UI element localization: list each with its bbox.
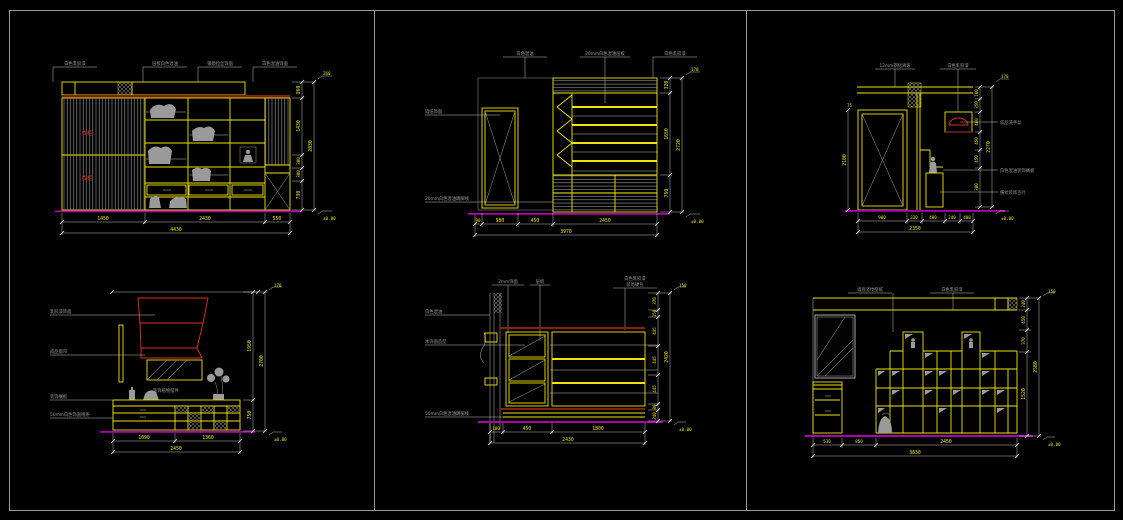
dim: 1520	[1021, 388, 1027, 400]
dim-total: 2270	[986, 141, 992, 153]
dim: 90	[475, 218, 481, 223]
datum: 170	[691, 67, 699, 72]
dim-total: 2580	[1033, 361, 1039, 373]
datum: ±0.00	[274, 437, 287, 442]
dim: 850	[855, 439, 863, 444]
d4-left-annotations: 乳胶漆饰面 成品窗帘 装饰搁板 50mm白色饰面线条 装饰植物摆件	[50, 308, 179, 418]
d1-top-annotations: 白色乳胶漆 层板白色混油 银镜拉丝饰面 白色混油饰面	[53, 60, 297, 82]
d5-top-annotations: 2mm饰面 层板 白色乳胶漆 装饰硬包	[492, 275, 657, 341]
d1-geometry: 衣柜 衣柜	[55, 82, 302, 212]
elevation-display-cabinet: 2mm饰面 层板 白色乳胶漆 装饰硬包 白色混油	[420, 275, 720, 480]
annotation-label: 银镜拉丝饰面	[207, 60, 233, 67]
dim-total: 2350	[909, 226, 921, 232]
dim: 750	[664, 189, 670, 198]
annotation-label: 白色混油	[425, 308, 442, 315]
dim: 300	[296, 170, 301, 178]
annotation-label: 横纹装饰百叶	[1000, 189, 1026, 196]
d6-geometry	[805, 298, 1033, 437]
dim: 75	[847, 103, 853, 108]
annotation-label: 墙面竖纹壁纸	[857, 286, 883, 293]
dim: 445	[652, 385, 657, 393]
annotation-label: 白色乳胶漆	[624, 275, 646, 282]
datum: ±0.00	[323, 216, 336, 221]
dim-total: 2430	[562, 437, 574, 443]
dim: 450	[1021, 316, 1026, 324]
dim: 530	[823, 439, 831, 444]
dim: 240	[1021, 300, 1026, 308]
d3-geometry	[845, 83, 1005, 212]
d3-right-annotations: 成品洗手盆 白色混油装饰搁板 横纹装饰百叶	[940, 119, 1035, 196]
dim: 450	[974, 137, 979, 145]
annotation-label: 2mm饰面	[498, 278, 518, 285]
dim: 180	[974, 89, 979, 97]
datum: ±0.00	[1048, 442, 1061, 447]
annotation-label: 20mm白色混油层板	[585, 50, 625, 57]
annotation-label: 乳胶漆饰面	[50, 308, 72, 315]
annotation-label: 装饰硬包	[626, 281, 644, 288]
dim: 480	[929, 215, 937, 220]
red-mark: 衣柜	[81, 129, 93, 137]
elevation-window-seat: 乳胶漆饰面 成品窗帘 装饰搁板 50mm白色饰面线条 装饰植物摆件 1090 1…	[45, 280, 320, 475]
datum: 150	[1048, 289, 1056, 294]
annotation-label: 20mm白色混油踢脚线	[425, 195, 470, 202]
dim: 150	[652, 309, 657, 317]
dim: 730	[296, 191, 302, 200]
annotation-label: 装饰搁板	[50, 393, 68, 400]
dim: 450	[974, 155, 979, 163]
cad-sheet: 白色乳胶漆 层板白色混油 银镜拉丝饰面 白色混油饰面 衣柜 衣柜	[0, 0, 1123, 520]
dim: 980	[496, 218, 505, 224]
dim-total: 2720	[676, 139, 682, 151]
dim: 180	[492, 426, 500, 431]
dim: 900	[878, 215, 886, 220]
dim: 2430	[199, 216, 211, 222]
dim: 2450	[940, 439, 952, 445]
d2-geometry	[468, 78, 670, 215]
d4-geometry	[100, 290, 260, 433]
dim-total: 2830	[308, 140, 314, 152]
dim: 1650	[664, 128, 670, 140]
annotation-label: 白色乳胶漆	[664, 50, 686, 57]
dim: 370	[652, 297, 657, 305]
elevation-door-niche: 12mm钢化清玻 白色乳胶漆 成品洗手盆 白色混油装饰搁板	[820, 55, 1110, 250]
red-mark: 衣柜	[81, 174, 93, 182]
d2-left-annotations: 墙纸饰面 20mm白色混油踢脚线	[425, 108, 553, 202]
dim-total: 2420	[664, 351, 670, 363]
dim: 445	[652, 327, 657, 335]
dim: 1090	[138, 435, 150, 441]
column-divider-2	[746, 10, 747, 510]
dim: 360	[296, 86, 302, 95]
annotation-label: 白色乳胶漆	[941, 286, 963, 293]
d6-top-annotations: 墙面竖纹壁纸 白色乳胶漆	[848, 286, 974, 332]
d5-left-annotations: 白色混油 木饰面造型 50mm白色混油踢脚线	[425, 308, 525, 417]
annotation-label: 装饰植物摆件	[153, 387, 179, 394]
dim: 1950	[247, 340, 253, 352]
d5-dimensions: 370 150 445 445 445 80 240 2420 150 ±0.0…	[488, 283, 692, 445]
dim: 350	[974, 101, 979, 109]
dim: 380	[974, 183, 979, 191]
annotation-label: 成品窗帘	[50, 348, 67, 355]
dim: 400	[963, 215, 971, 220]
elevation-bookshelf: 墙面竖纹壁纸 白色乳胶漆	[790, 285, 1090, 475]
annotation-label: 层板白色混油	[152, 60, 178, 67]
dim: 2100	[842, 154, 848, 166]
dim: 450	[531, 218, 540, 224]
datum: 260	[323, 71, 331, 76]
dim: 450	[523, 426, 532, 432]
datum: 170	[1001, 74, 1009, 79]
column-divider-1	[374, 10, 375, 510]
annotation-label: 50mm白色混油踢脚线	[425, 410, 470, 417]
dim: 1360	[202, 435, 214, 441]
elevation-wardrobe: 白色乳胶漆 层板白色混油 银镜拉丝饰面 白色混油饰面 衣柜 衣柜	[40, 55, 340, 245]
dim: 370	[1021, 337, 1026, 345]
datum: ±0.00	[1001, 216, 1014, 221]
dim: 240	[948, 215, 956, 220]
elevation-cabinet: 白色混油 20mm白色混油层板 白色乳胶漆 墙纸饰面 20mm白色混油踢脚线	[420, 45, 720, 250]
dim: 750	[247, 411, 253, 420]
annotation-label: 12mm钢化清玻	[879, 62, 911, 69]
dim: 1430	[296, 120, 302, 132]
dim: 550	[273, 216, 282, 222]
datum: ±0.00	[679, 427, 692, 432]
datum: 170	[274, 283, 282, 288]
annotation-label: 白色乳胶漆	[64, 60, 86, 67]
dim: 320	[664, 81, 670, 90]
dim-total: 2700	[259, 355, 265, 367]
dim-total: 4430	[170, 227, 182, 233]
annotation-label: 墙纸饰面	[425, 108, 443, 115]
annotation-label: 白色混油饰面	[262, 60, 288, 67]
dim: 2450	[599, 218, 611, 224]
dim: 240	[652, 412, 657, 420]
dim: 330	[910, 215, 918, 220]
annotation-label: 白色乳胶漆	[947, 62, 969, 69]
datum: ±0.00	[691, 219, 704, 224]
dim: 1450	[97, 216, 109, 222]
dim: 80	[652, 404, 657, 410]
datum: 150	[679, 283, 687, 288]
annotation-label: 白色混油装饰搁板	[1000, 167, 1035, 174]
annotation-label: 白色混油	[516, 50, 533, 57]
dim: 445	[652, 356, 657, 364]
dim: 300	[296, 157, 301, 165]
d2-top-annotations: 白色混油 20mm白色混油层板 白色乳胶漆	[503, 50, 697, 103]
dim: 1800	[592, 426, 604, 432]
annotation-label: 成品洗手盆	[1000, 119, 1022, 126]
annotation-label: 层板	[536, 278, 545, 285]
dim: 460	[974, 118, 979, 126]
dim-total: 3830	[909, 450, 921, 456]
dim-total: 2450	[170, 446, 182, 452]
dim-total: 3970	[560, 229, 572, 235]
d5-geometry	[478, 293, 663, 443]
annotation-label: 木饰面造型	[425, 338, 447, 345]
annotation-label: 50mm白色饰面线条	[50, 411, 90, 418]
